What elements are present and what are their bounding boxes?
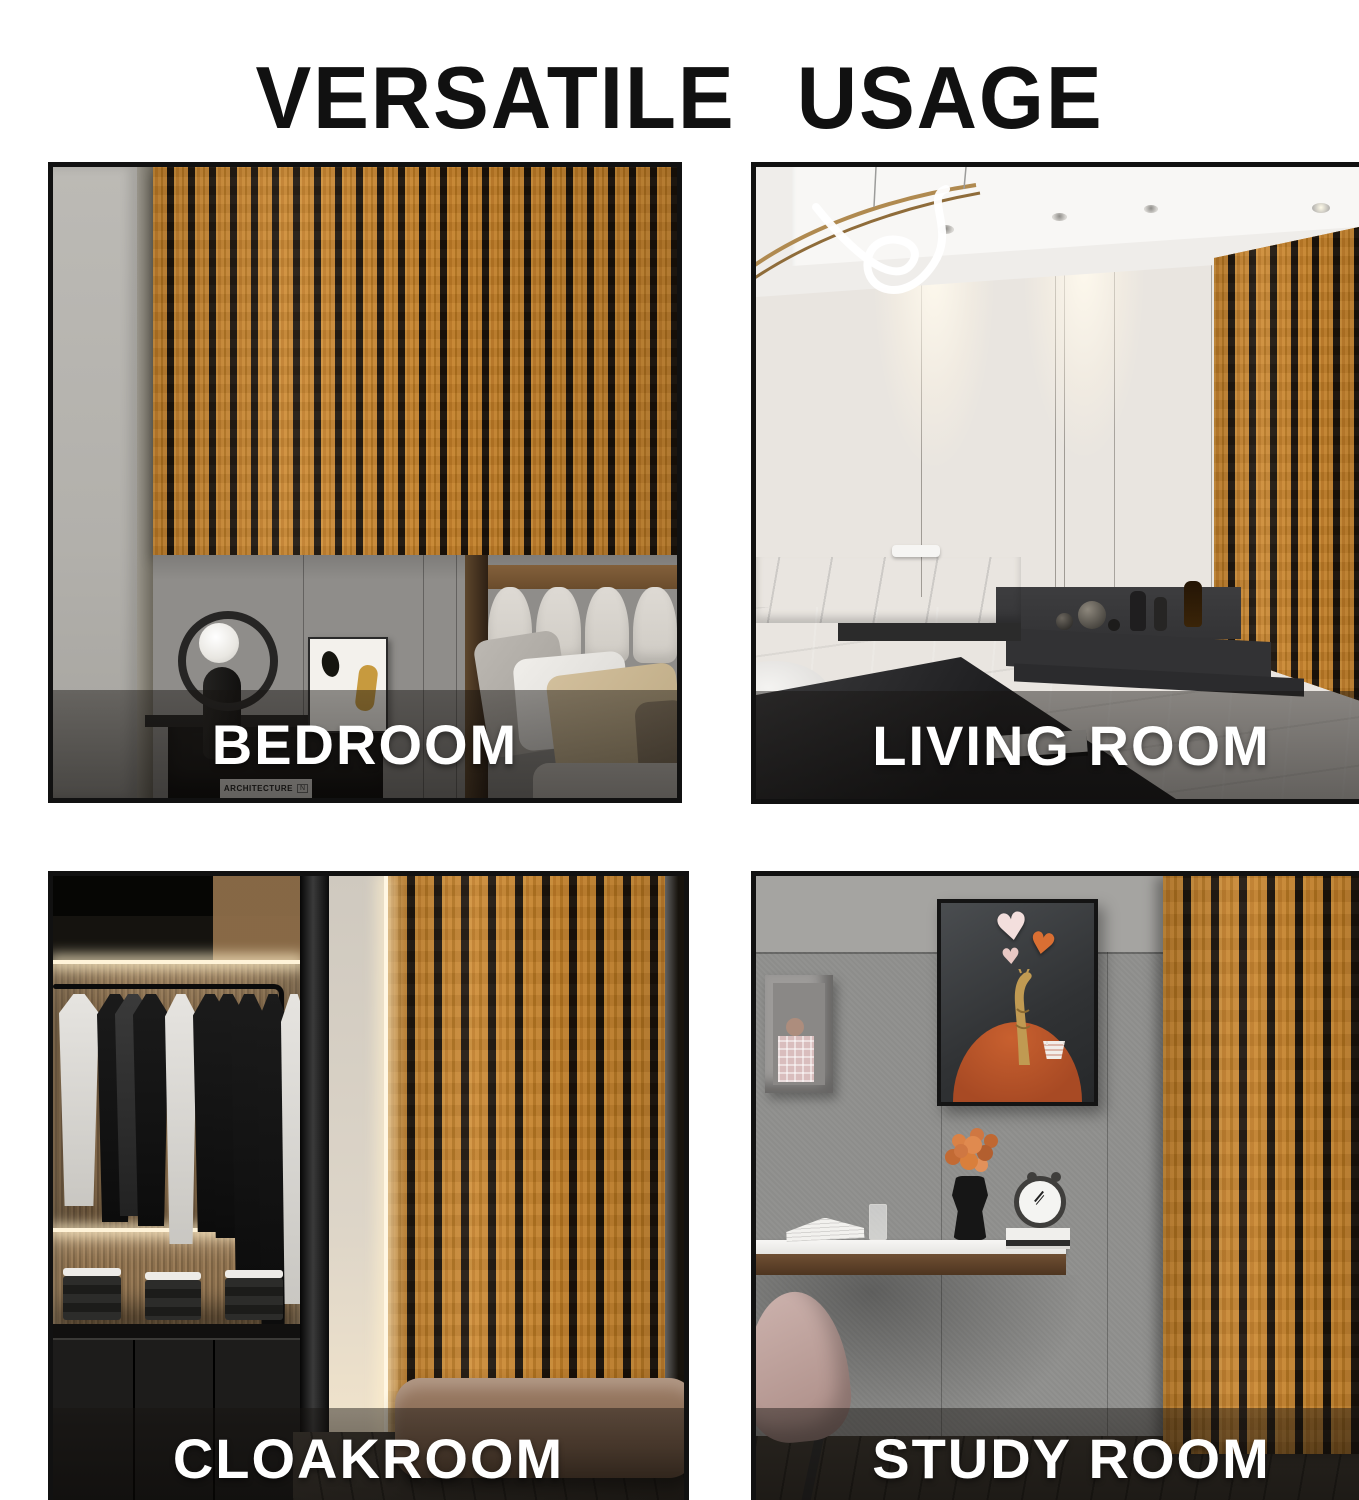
marble-tv-console (756, 557, 1021, 623)
folded-clothes (63, 1276, 121, 1320)
wardrobe-frame-divider (300, 876, 329, 1500)
decor-sphere (1056, 613, 1073, 630)
cloakroom-photo: CLOAKROOM (48, 871, 689, 1500)
wall-artwork: ♥ ♥ ♥ (937, 899, 1098, 1106)
page-title: VERSATILE USAGE (34, 47, 1325, 149)
hanging-jacket (133, 994, 169, 1226)
hanging-shirt (59, 994, 99, 1206)
ceiling-spotlight (1144, 205, 1158, 213)
ceiling-downlight (1312, 203, 1330, 213)
product-usage-collage: VERSATILE USAGE ARCHITECTURE N BEDROO (0, 0, 1359, 1500)
wood-slat-panel (1163, 876, 1359, 1454)
bed-wood-rail (488, 565, 677, 589)
shelf-counter (53, 1324, 300, 1338)
decor-bottle (1184, 581, 1202, 627)
bedroom-photo: ARCHITECTURE N BEDROOM (48, 162, 682, 803)
headboard-cushion (633, 587, 677, 663)
wood-slat-panel (388, 876, 665, 1446)
folded-clothes (225, 1278, 283, 1320)
room-label: STUDY ROOM (872, 1426, 1271, 1491)
wardrobe-top-cabinet (53, 876, 300, 962)
hanging-dress (165, 994, 197, 1244)
caption-band: BEDROOM (53, 690, 677, 798)
caption-band: LIVING ROOM (756, 691, 1359, 799)
desk-wood-edge (756, 1254, 1066, 1275)
led-strip (53, 960, 300, 964)
living-room-photo: LIVING ROOM (751, 162, 1359, 804)
caption-band: STUDY ROOM (756, 1408, 1359, 1500)
caption-band: CLOAKROOM (53, 1408, 684, 1500)
drinking-glass (869, 1204, 887, 1240)
lamp-bulb (199, 623, 239, 663)
decor-vase (1154, 597, 1167, 631)
alarm-clock (1014, 1176, 1066, 1228)
console-plinth (838, 623, 1021, 641)
black-vase (952, 1176, 988, 1240)
tray (892, 545, 940, 557)
heart-balloon: ♥ (1000, 944, 1021, 970)
teddy-bear (786, 1018, 804, 1036)
led-edge-light (384, 876, 388, 1500)
heart-balloon: ♥ (1026, 925, 1059, 964)
room-label: BEDROOM (212, 712, 518, 777)
ring-chandelier (756, 167, 1076, 317)
desk-top (756, 1240, 1066, 1254)
room-label: CLOAKROOM (173, 1426, 564, 1491)
room-label: LIVING ROOM (872, 713, 1270, 778)
book-stack (1006, 1228, 1070, 1240)
study-room-photo: ♥ ♥ ♥ STUDY ROOM (751, 871, 1359, 1500)
decor-sphere (1108, 619, 1120, 631)
plaster-wall (329, 876, 387, 1500)
clothes-rail (53, 984, 275, 989)
decor-vase (1130, 591, 1146, 631)
folded-clothes (145, 1280, 201, 1320)
gift-box (778, 1036, 814, 1082)
flower-bouquet (954, 1144, 968, 1158)
wood-slat-panel (153, 167, 677, 555)
decor-sphere (1078, 601, 1106, 629)
giraffe-figure (1003, 969, 1043, 1065)
